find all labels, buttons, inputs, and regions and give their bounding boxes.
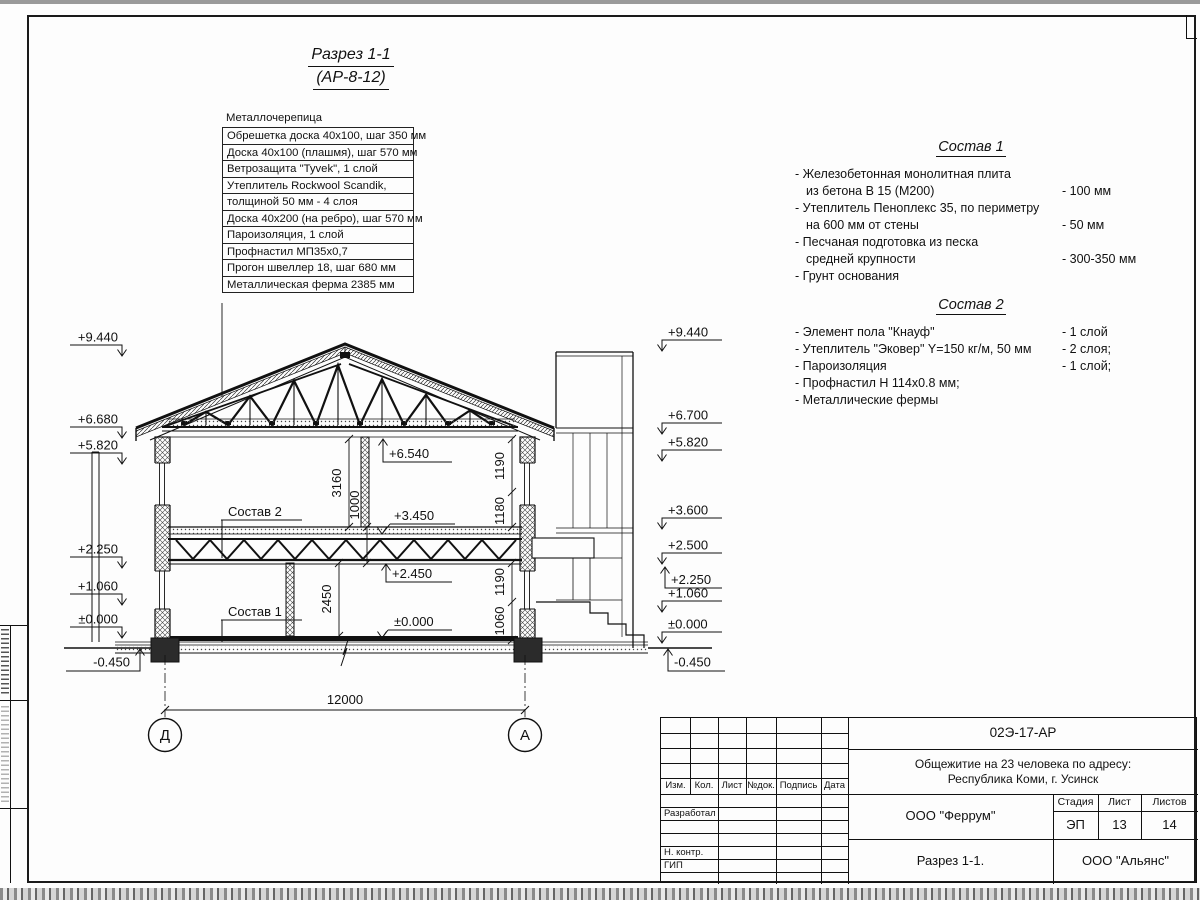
annex (535, 352, 644, 648)
span-dim-label: 12000 (327, 692, 363, 707)
tb-col-podpis: Подпись (776, 778, 821, 794)
tb-col-list: Лист (718, 778, 746, 794)
tb-drawing-title: Разрез 1-1. (848, 839, 1053, 884)
elevation-label: -0.450 (674, 655, 711, 670)
axis-markers: Д А (149, 719, 542, 752)
tb-col-ndok: №док. (746, 778, 776, 794)
elevation-marks-left: +9.440 +6.680 +5.820 +2.250 +1.060 ±0.00… (66, 330, 145, 672)
scan-artifact-bottom (0, 888, 1200, 900)
level-label: +6.540 (389, 446, 429, 461)
tb-sheet-value: 13 (1098, 811, 1141, 839)
elevation-label: +1.060 (668, 586, 708, 601)
axis-letter-right: А (520, 727, 530, 744)
tb-stage-value: ЭП (1053, 811, 1098, 839)
level-label: +3.450 (394, 508, 434, 523)
elevation-label: +5.820 (668, 435, 708, 450)
elevation-label: +9.440 (668, 325, 708, 340)
dim-label: 1180 (492, 497, 507, 525)
margin-divider (0, 808, 27, 809)
tb-col-kol: Кол. (690, 778, 718, 794)
elevation-marks-right: +9.440 +6.700 +5.820 +3.600 +2.500 +2.25… (658, 325, 726, 672)
tb-sheet-label: Лист (1098, 794, 1141, 811)
dim-label: 1190 (492, 452, 507, 480)
tb-role-developed: Разработал (661, 807, 721, 820)
sostav1-pointer-label: Состав 1 (228, 604, 282, 619)
dim-label: 1000 (347, 491, 362, 520)
level-label: ±0.000 (394, 614, 434, 629)
level-label: +2.450 (392, 566, 432, 581)
tb-col-izm: Изм. (661, 778, 690, 794)
tb-role-gip: ГИП (661, 859, 721, 872)
span-dimension: 12000 (161, 655, 529, 717)
interfloor-truss (168, 527, 522, 564)
window-left-lower (154, 571, 171, 609)
tb-sheets-label: Листов (1141, 794, 1198, 811)
tb-doc-number: 02Э-17-АР (848, 718, 1198, 749)
dim-label: 2450 (319, 585, 334, 614)
elevation-label: +1.060 (78, 579, 118, 594)
entrance-canopy (532, 538, 594, 558)
tb-contractor: ООО "Альянс" (1053, 839, 1198, 884)
window-left-upper (154, 463, 171, 505)
partition-floor1 (286, 563, 294, 636)
tb-stage-label: Стадия (1053, 794, 1098, 811)
dim-label: 3160 (329, 469, 344, 498)
elevation-label: +6.680 (78, 412, 118, 427)
elevation-label: +5.820 (78, 438, 118, 453)
entrance-steps (535, 602, 644, 648)
elevation-label: +2.250 (78, 542, 118, 557)
sostav2-pointer-label: Состав 2 (228, 504, 282, 519)
tb-role-ncontrol: Н. контр. (661, 846, 721, 859)
tb-org: ООО "Феррум" (848, 794, 1053, 839)
window-right-lower (519, 571, 536, 609)
partition-floor2 (361, 437, 369, 527)
elevation-label: -0.450 (93, 655, 130, 670)
dim-label: 1190 (492, 568, 507, 596)
tb-col-data: Дата (821, 778, 848, 794)
drawing-sheet: Разрез 1-1 (АР-8-12) Металлочерепица Обр… (0, 0, 1200, 900)
elevation-label: +3.600 (668, 503, 708, 518)
ridge-plate (340, 352, 350, 358)
elevation-label: ±0.000 (668, 617, 708, 632)
elevation-label: +9.440 (78, 330, 118, 345)
building-section-drawing: +9.440 +6.680 +5.820 +2.250 +1.060 ±0.00… (0, 0, 1200, 780)
elevation-label: +2.500 (668, 538, 708, 553)
window-right-upper (519, 463, 536, 505)
tb-sheets-value: 14 (1141, 811, 1198, 839)
elevation-label: ±0.000 (78, 612, 118, 627)
dim-label: 1060 (492, 607, 507, 636)
title-block: Изм. Кол. Лист №док. Подпись Дата Разраб… (660, 717, 1197, 883)
elevation-label: +6.700 (668, 408, 708, 423)
tb-project-name: Общежитие на 23 человека по адресу: Респ… (848, 749, 1198, 794)
axis-letter-left: Д (160, 727, 170, 744)
